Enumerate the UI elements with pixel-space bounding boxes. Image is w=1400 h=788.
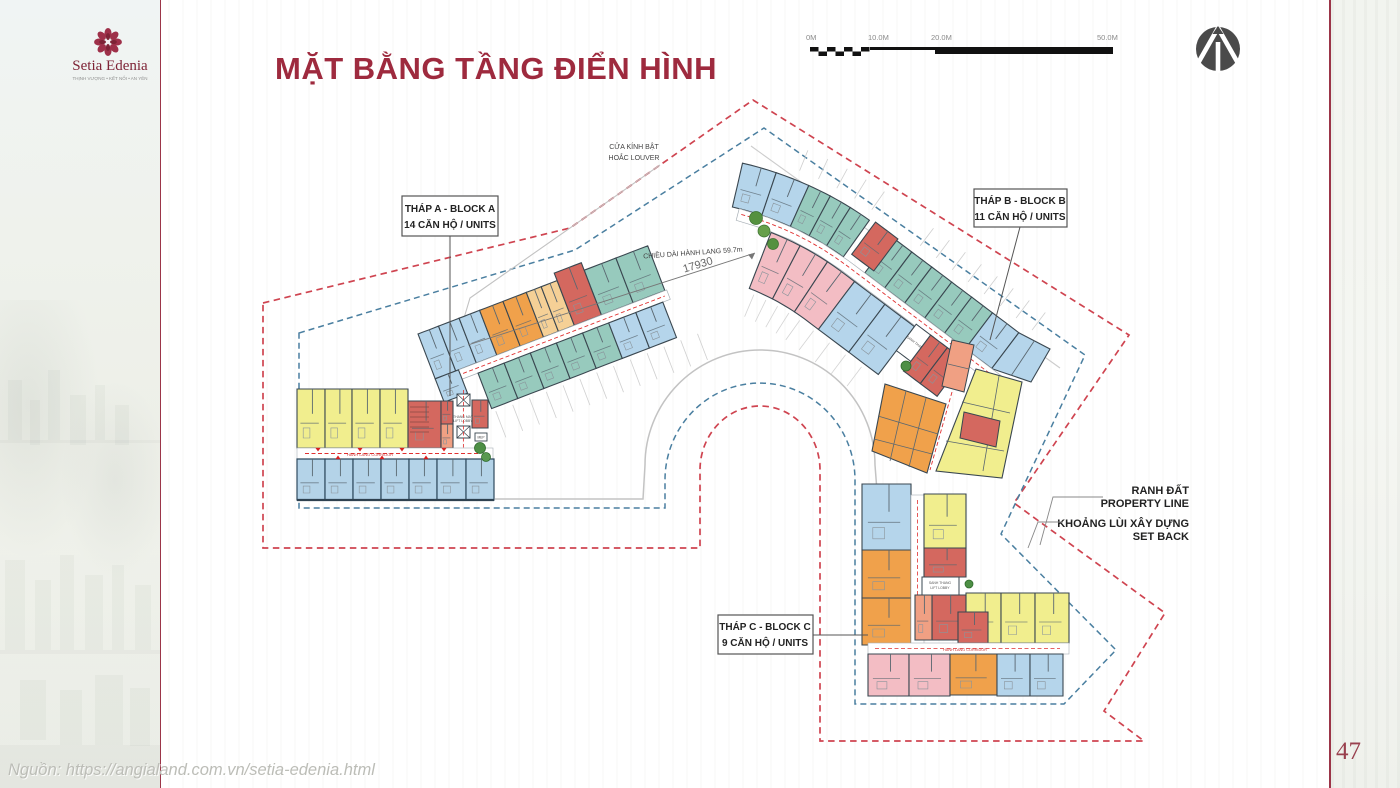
- svg-text:SANH THANG: SANH THANG: [929, 581, 952, 585]
- svg-text:MEP: MEP: [478, 436, 485, 440]
- svg-text:THÁP A - BLOCK A: THÁP A - BLOCK A: [405, 202, 495, 215]
- svg-text:HOẮC LOUVER: HOẮC LOUVER: [609, 153, 660, 162]
- svg-text:CHIỀU DÀI HÀNH LANG 59.7m: CHIỀU DÀI HÀNH LANG 59.7m: [643, 244, 743, 261]
- svg-text:RANH ĐẤT: RANH ĐẤT: [1132, 484, 1190, 497]
- svg-text:PROPERTY LINE: PROPERTY LINE: [1101, 498, 1189, 510]
- svg-text:14 CĂN HỘ / UNITS: 14 CĂN HỘ / UNITS: [404, 218, 496, 231]
- svg-text:THÁP B - BLOCK B: THÁP B - BLOCK B: [974, 194, 1065, 207]
- svg-text:THÁP C - BLOCK C: THÁP C - BLOCK C: [719, 620, 810, 633]
- svg-text:11 CĂN HỘ / UNITS: 11 CĂN HỘ / UNITS: [974, 210, 1065, 223]
- svg-text:SET BACK: SET BACK: [1133, 531, 1189, 543]
- svg-text:LIFT LOBBY: LIFT LOBBY: [930, 586, 950, 590]
- svg-text:CỬA KÍNH BẬT: CỬA KÍNH BẬT: [609, 142, 659, 151]
- svg-text:HANH LANG CORRIDOR: HANH LANG CORRIDOR: [347, 452, 393, 457]
- svg-text:17930: 17930: [682, 255, 715, 275]
- svg-text:9 CĂN HỘ / UNITS: 9 CĂN HỘ / UNITS: [722, 636, 808, 649]
- svg-text:KHOẢNG LÙI XÂY DỰNG: KHOẢNG LÙI XÂY DỰNG: [1057, 517, 1189, 530]
- svg-text:HANH LANG CORRIDOR: HANH LANG CORRIDOR: [943, 648, 987, 652]
